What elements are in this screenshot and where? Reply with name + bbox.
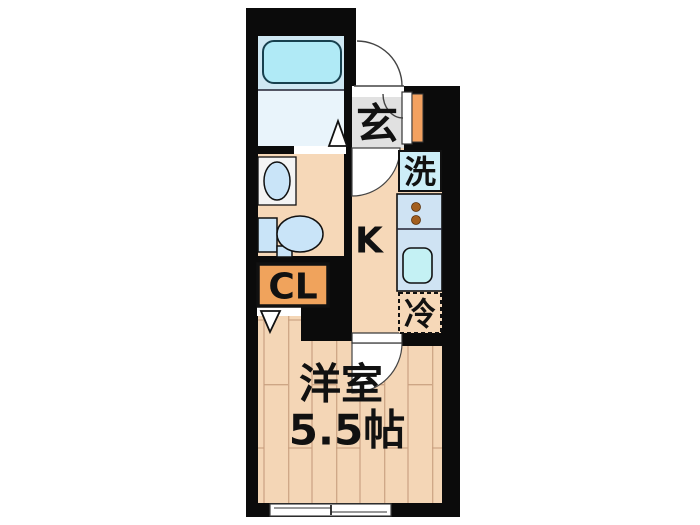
stove-burner — [412, 216, 421, 225]
wall-segment — [246, 8, 356, 36]
kitchen-sink — [403, 248, 432, 283]
entrance-door-leaf — [402, 92, 412, 144]
entrance-door-swing-arc — [357, 41, 402, 86]
toilet-tank — [258, 218, 277, 252]
wall-segment — [301, 306, 328, 341]
washbasin-bowl — [264, 162, 290, 200]
kitchen-label: K — [355, 221, 384, 262]
entrance-door — [412, 94, 423, 142]
wall-segment — [344, 8, 356, 86]
bathroom-door-threshold — [294, 146, 346, 154]
floor-plan-canvas: 玄 洗 K 冷 CL 洋室 5.5帖 — [0, 0, 700, 525]
wall-segment — [328, 256, 352, 341]
washing-machine-label: 洗 — [404, 153, 436, 191]
room-door-leaf — [352, 333, 402, 343]
entrance-label: 玄 — [356, 100, 398, 149]
room-name-label: 洋室 — [299, 360, 383, 409]
bathtub — [263, 41, 341, 83]
wall-segment — [442, 86, 460, 517]
closet-label: CL — [268, 267, 317, 308]
floor-plan: 玄 洗 K 冷 CL 洋室 5.5帖 — [0, 0, 700, 525]
refrigerator-label: 冷 — [404, 295, 436, 333]
toilet-bowl — [277, 216, 323, 252]
entrance-step — [352, 86, 404, 97]
stove-burner — [412, 203, 421, 212]
room-size-label: 5.5帖 — [289, 406, 405, 455]
